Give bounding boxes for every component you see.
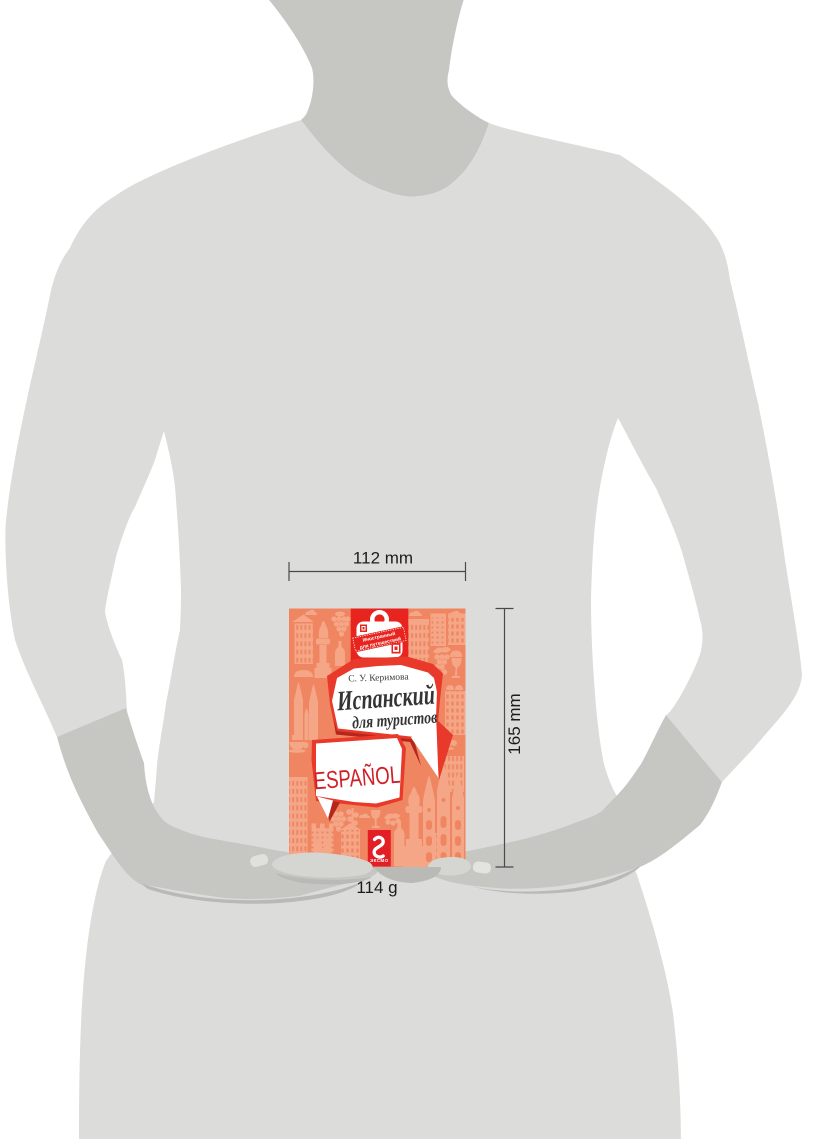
svg-text:165 mm: 165 mm bbox=[505, 693, 524, 754]
svg-text:114 g: 114 g bbox=[356, 878, 397, 897]
svg-text:112 mm: 112 mm bbox=[353, 549, 413, 568]
svg-text:ЭКСМО: ЭКСМО bbox=[370, 858, 389, 863]
